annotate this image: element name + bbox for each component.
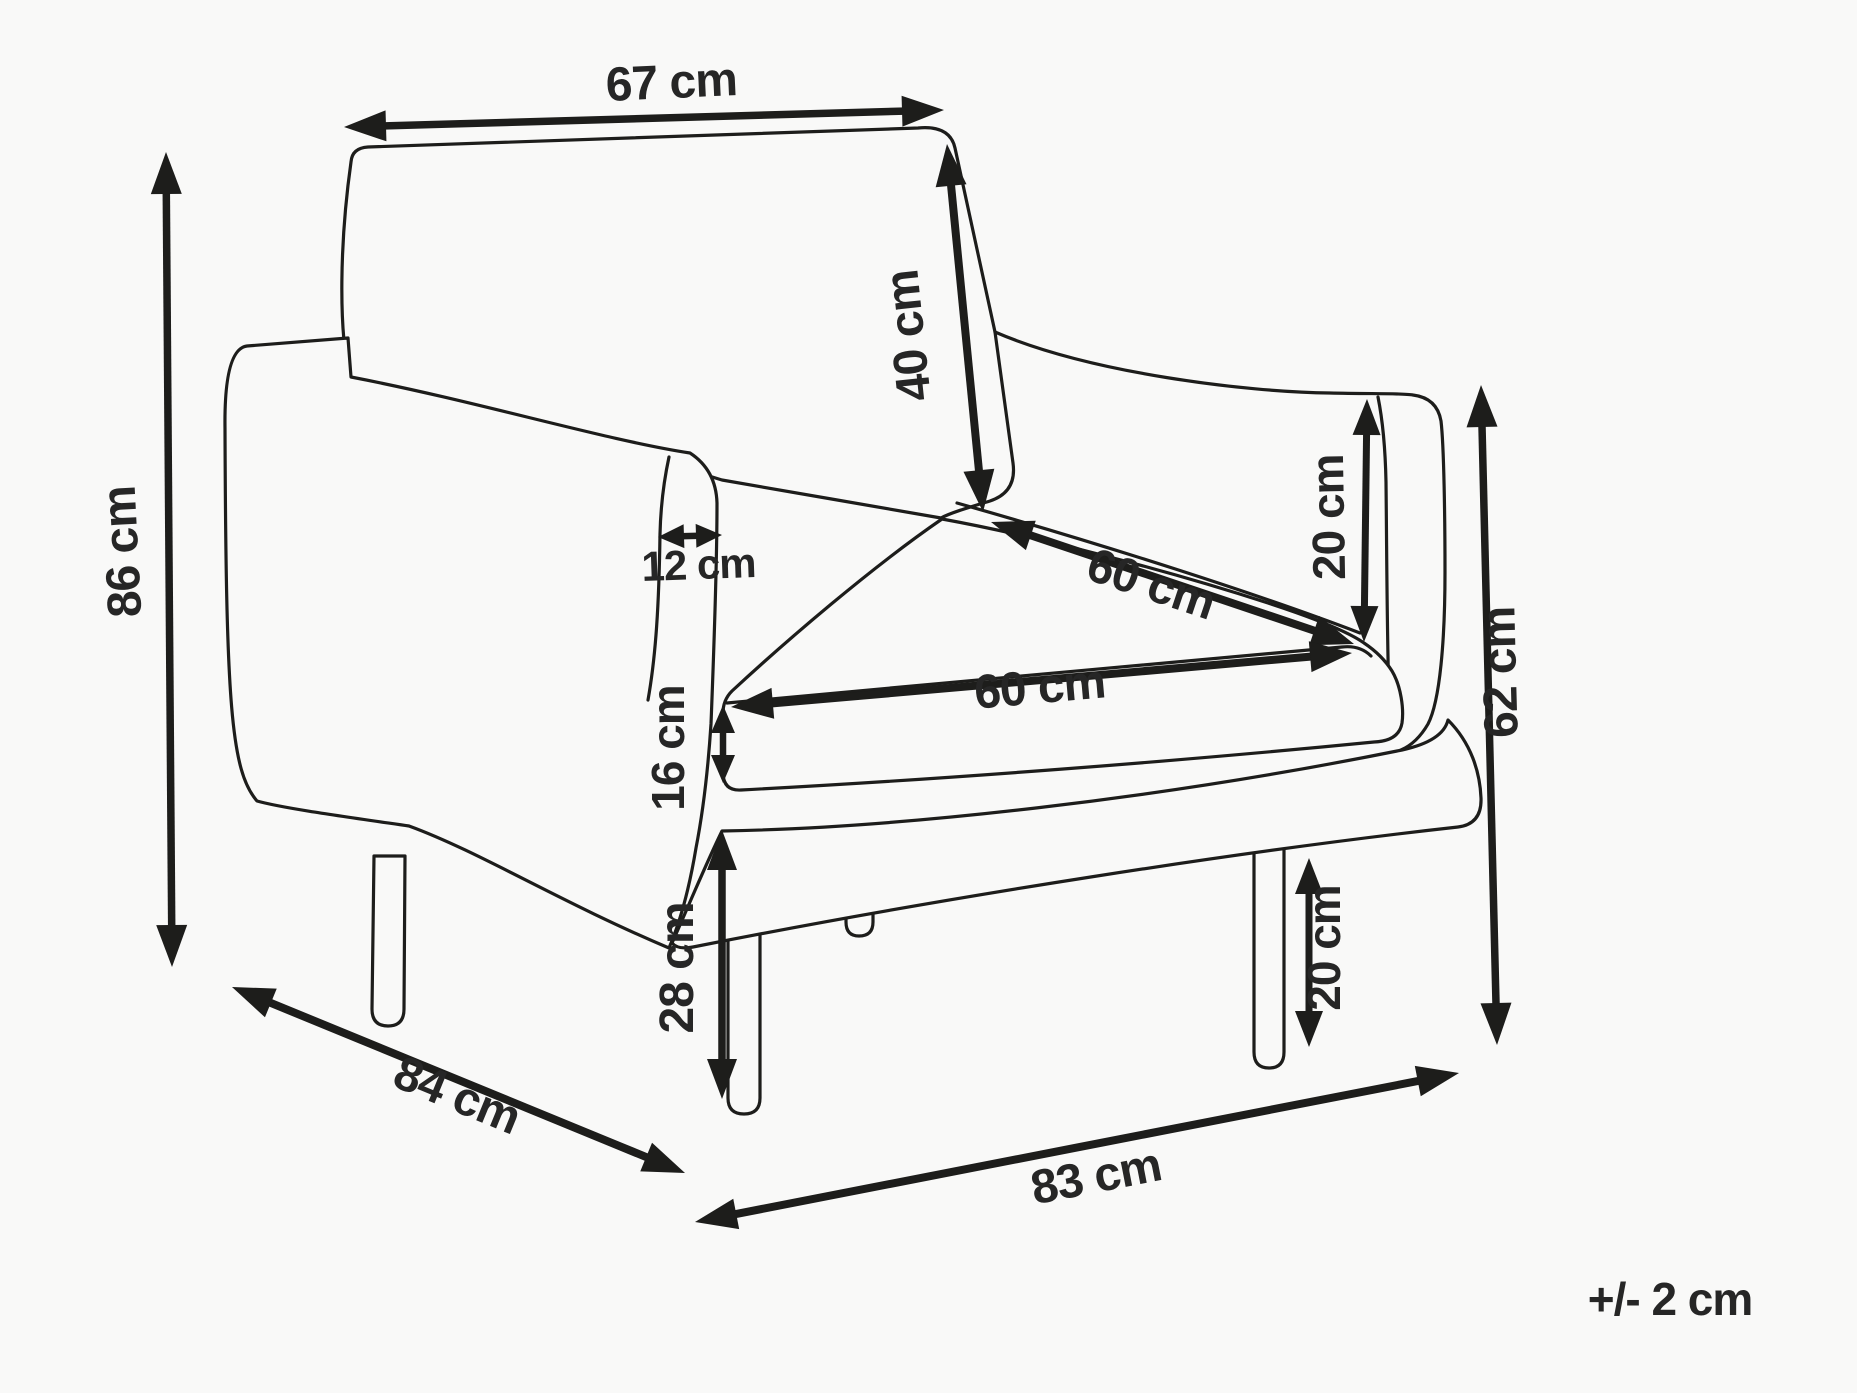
dim-label-seat-height: 28 cm xyxy=(651,902,704,1033)
front-right-leg xyxy=(1254,843,1284,1068)
dim-label-total-height: 86 cm xyxy=(93,485,153,619)
dim-label-armrest-width: 12 cm xyxy=(641,539,757,590)
diagram-canvas: 67 cm 86 cm 40 cm 12 cm 60 cm 20 cm 60 c… xyxy=(0,0,1857,1393)
dim-label-leg-height: 20 cm xyxy=(1298,885,1350,1010)
dimension-total-height xyxy=(151,152,187,967)
dim-label-total-depth: 84 cm xyxy=(386,1046,527,1145)
dim-label-cushion-thickness: 16 cm xyxy=(642,685,694,810)
armchair-dimension-diagram: 67 cm 86 cm 40 cm 12 cm 60 cm 20 cm 60 c… xyxy=(0,0,1857,1393)
dim-label-side-height: 62 cm xyxy=(1472,606,1528,738)
tolerance-note: +/- 2 cm xyxy=(1588,1273,1753,1325)
dimension-armrest-above-seat xyxy=(1350,399,1380,642)
dim-label-back-width: 67 cm xyxy=(605,53,738,112)
dim-label-armrest-above-seat: 20 cm xyxy=(1301,454,1355,580)
rear-left-leg xyxy=(372,856,405,1026)
